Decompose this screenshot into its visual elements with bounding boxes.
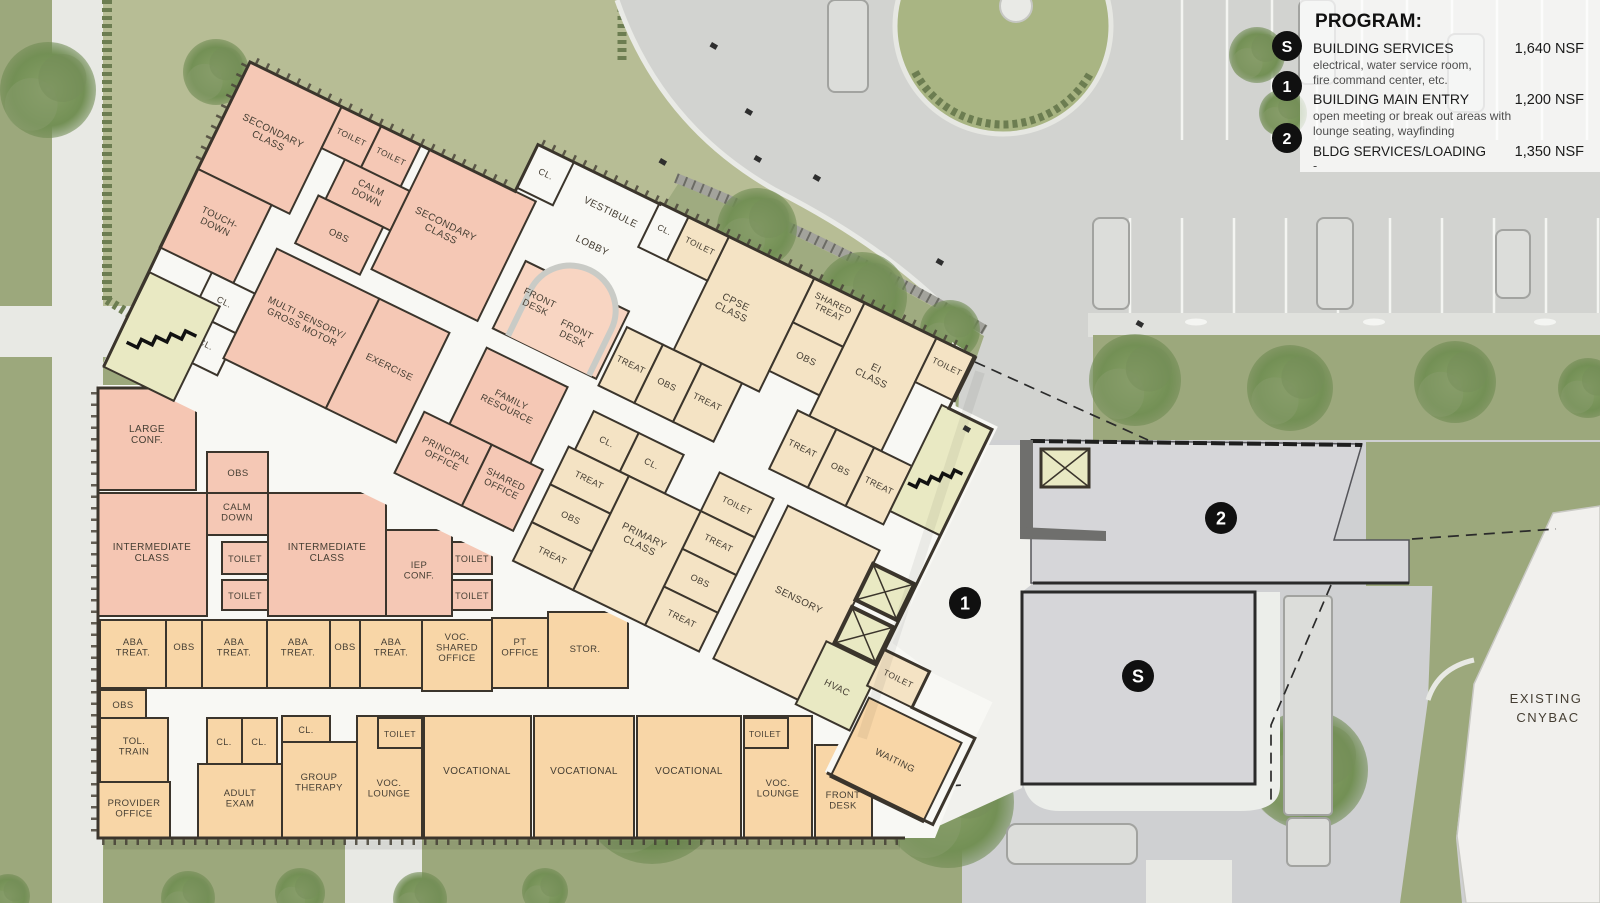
svg-text:TOILET: TOILET — [455, 554, 489, 564]
svg-text:1: 1 — [960, 593, 970, 613]
svg-text:TOILET: TOILET — [384, 729, 416, 739]
svg-text:2: 2 — [1283, 131, 1292, 148]
svg-text:CNYBAC: CNYBAC — [1516, 710, 1579, 725]
svg-text:CL.: CL. — [251, 737, 266, 747]
svg-text:VOCATIONAL: VOCATIONAL — [655, 766, 723, 777]
svg-text:TOILET: TOILET — [749, 729, 781, 739]
svg-text:-: - — [1313, 159, 1317, 173]
svg-text:LARGECONF.: LARGECONF. — [129, 424, 165, 446]
svg-text:PROVIDEROFFICE: PROVIDEROFFICE — [108, 798, 161, 820]
svg-text:1: 1 — [1283, 79, 1292, 96]
svg-text:CL.: CL. — [216, 737, 231, 747]
svg-text:1,350 NSF: 1,350 NSF — [1515, 144, 1584, 160]
svg-text:BLDG SERVICES/LOADING: BLDG SERVICES/LOADING — [1313, 144, 1486, 159]
svg-text:FRONTDESK: FRONTDESK — [826, 790, 861, 812]
svg-text:PROGRAM:: PROGRAM: — [1315, 11, 1422, 32]
svg-text:TOILET: TOILET — [228, 554, 262, 564]
svg-text:BUILDING MAIN ENTRY: BUILDING MAIN ENTRY — [1313, 91, 1470, 107]
svg-text:S: S — [1282, 39, 1293, 56]
svg-text:fire command center, etc.: fire command center, etc. — [1313, 73, 1448, 87]
svg-text:electrical, water service room: electrical, water service room, — [1313, 58, 1472, 72]
svg-text:OBS: OBS — [112, 700, 133, 711]
svg-text:VOCATIONAL: VOCATIONAL — [550, 766, 618, 777]
svg-text:OBS: OBS — [173, 642, 194, 653]
svg-text:GROUPTHERAPY: GROUPTHERAPY — [295, 772, 343, 794]
svg-text:CL.: CL. — [298, 725, 313, 735]
svg-text:OBS: OBS — [227, 468, 248, 479]
svg-text:2: 2 — [1216, 508, 1226, 528]
svg-text:lounge seating, wayfinding: lounge seating, wayfinding — [1313, 124, 1454, 138]
svg-text:1,640 NSF: 1,640 NSF — [1515, 41, 1584, 57]
svg-text:STOR.: STOR. — [570, 644, 601, 655]
svg-text:TOILET: TOILET — [228, 591, 262, 601]
svg-text:TOILET: TOILET — [455, 591, 489, 601]
svg-text:S: S — [1132, 666, 1144, 686]
svg-text:TOL.TRAIN: TOL.TRAIN — [119, 736, 150, 758]
svg-text:ADULTEXAM: ADULTEXAM — [224, 788, 256, 810]
svg-text:EXISTING: EXISTING — [1510, 691, 1583, 706]
svg-text:VOCATIONAL: VOCATIONAL — [443, 766, 511, 777]
svg-text:1,200 NSF: 1,200 NSF — [1515, 92, 1584, 108]
svg-text:CALMDOWN: CALMDOWN — [221, 502, 253, 524]
svg-text:OBS: OBS — [334, 642, 355, 653]
svg-text:BUILDING SERVICES: BUILDING SERVICES — [1313, 40, 1454, 56]
svg-text:open meeting or break out area: open meeting or break out areas with — [1313, 109, 1511, 123]
